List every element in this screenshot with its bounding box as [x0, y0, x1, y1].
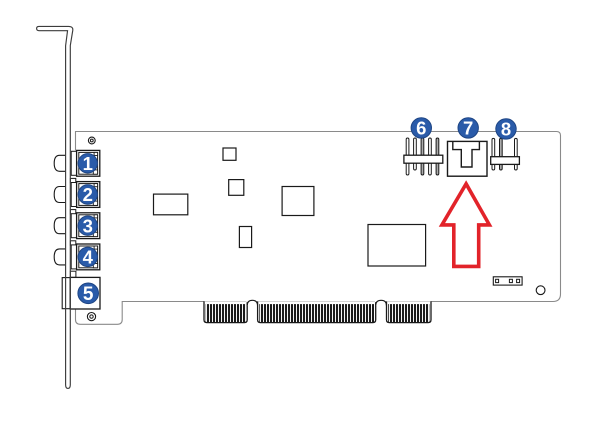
svg-text:7: 7 [463, 118, 473, 139]
svg-text:6: 6 [416, 118, 426, 139]
svg-text:4: 4 [83, 247, 94, 268]
svg-text:8: 8 [501, 119, 511, 140]
svg-text:5: 5 [83, 284, 94, 305]
svg-text:1: 1 [83, 153, 93, 174]
svg-text:2: 2 [83, 184, 93, 205]
svg-text:3: 3 [83, 215, 93, 236]
